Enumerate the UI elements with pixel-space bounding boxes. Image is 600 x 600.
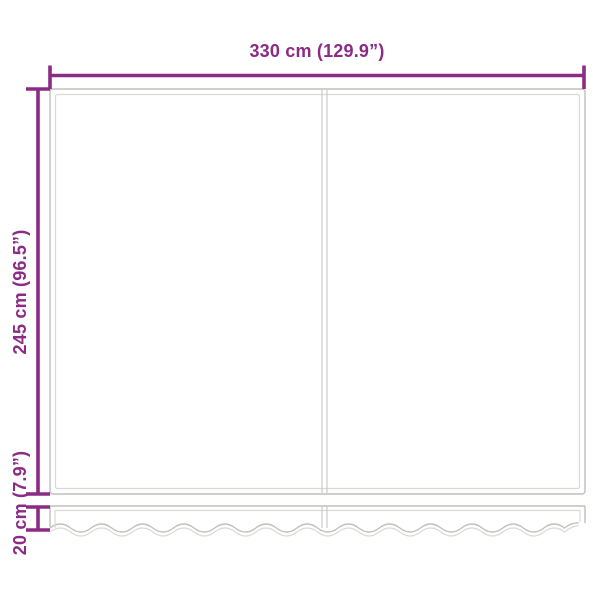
valance-dimension-label: 20 cm (7.9”) <box>10 451 30 555</box>
awning-dimension-drawing: 330 cm (129.9”) 245 cm (96.5”) 20 cm (7.… <box>0 0 600 600</box>
fabric-outer-outline <box>50 89 585 494</box>
valance-inner-outline <box>55 511 580 529</box>
valance-outline <box>50 506 585 527</box>
dimension-labels: 330 cm (129.9”) 245 cm (96.5”) 20 cm (7.… <box>10 41 385 555</box>
dimension-lines <box>26 66 584 531</box>
fabric-panel <box>50 89 585 532</box>
center-seam <box>322 89 327 528</box>
height-dimension-label: 245 cm (96.5”) <box>10 230 30 355</box>
fabric-panel-inner-lines <box>50 95 580 537</box>
width-dimension-label: 330 cm (129.9”) <box>249 41 384 61</box>
product-dimension-diagram: 330 cm (129.9”) 245 cm (96.5”) 20 cm (7.… <box>0 0 600 600</box>
fabric-inner-outline <box>56 95 580 489</box>
valance-wavy-hem-outer <box>50 523 578 532</box>
